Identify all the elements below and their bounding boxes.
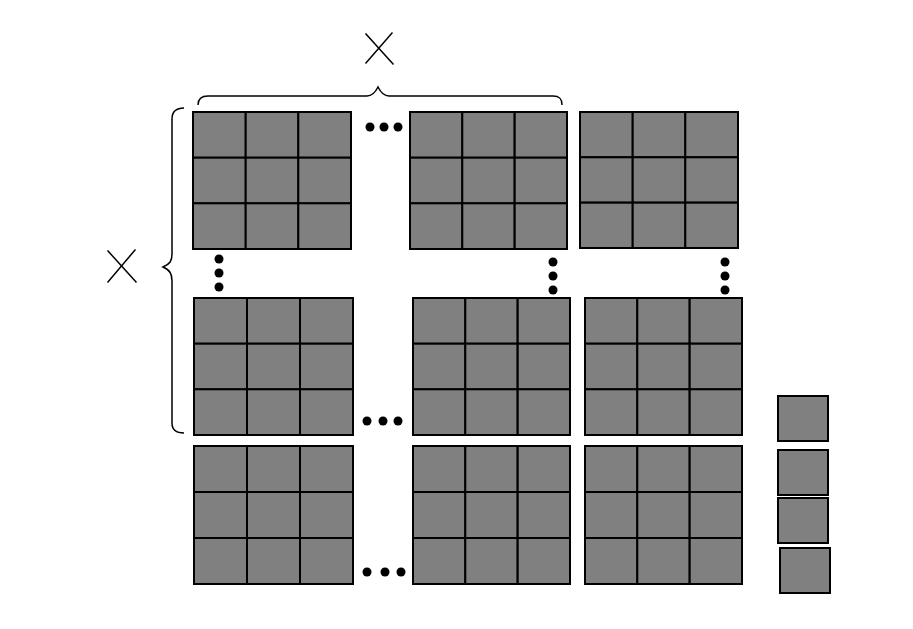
block-cell: [300, 344, 353, 390]
block-cell: [247, 298, 300, 344]
block-cell: [300, 446, 353, 492]
block-cell: [637, 492, 689, 538]
block-cell: [298, 112, 351, 158]
h-ellipsis-group: [366, 123, 403, 132]
times-stroke: [366, 34, 393, 64]
block-cell: [247, 538, 300, 584]
unit-square: [780, 548, 830, 593]
block-cell: [633, 112, 686, 157]
block-cell: [194, 538, 247, 584]
block-cell: [685, 112, 738, 157]
v-ellipsis-group: [215, 255, 224, 292]
ellipsis-dot: [215, 255, 224, 264]
block-cell: [410, 112, 462, 158]
block-cell: [637, 538, 689, 584]
block-cell: [585, 389, 637, 435]
block-cell: [194, 492, 247, 538]
block-cell: [246, 203, 299, 249]
ellipsis-dot: [381, 568, 390, 577]
block-cell: [247, 389, 300, 435]
block-cell: [247, 344, 300, 390]
block-cell: [300, 538, 353, 584]
block-cell: [580, 112, 633, 157]
ellipsis-dot: [215, 283, 224, 292]
block-cell: [194, 344, 247, 390]
block-cell: [585, 298, 637, 344]
block-cell: [410, 203, 462, 249]
block-cell: [465, 492, 517, 538]
block-cell: [193, 203, 246, 249]
block-cell: [413, 446, 465, 492]
matrix-block: [194, 298, 353, 435]
matrix-block: [193, 112, 351, 249]
block-cell: [518, 492, 570, 538]
block-cell: [465, 389, 517, 435]
block-cell: [637, 389, 689, 435]
matrix-block: [413, 446, 570, 584]
block-cell: [465, 538, 517, 584]
block-cell: [410, 158, 462, 204]
unit-square: [778, 396, 828, 441]
block-cell: [413, 538, 465, 584]
block-cell: [690, 538, 742, 584]
height-brace: [163, 108, 184, 433]
block-cell: [413, 389, 465, 435]
block-cell: [637, 446, 689, 492]
block-cell: [685, 157, 738, 202]
block-cell: [194, 389, 247, 435]
ellipsis-dot: [721, 272, 730, 281]
block-cell: [515, 203, 567, 249]
block-cell: [518, 344, 570, 390]
block-cell: [298, 158, 351, 204]
ellipsis-dot: [363, 417, 372, 426]
ellipsis-dot: [215, 269, 224, 278]
block-cell: [633, 157, 686, 202]
block-cell: [465, 298, 517, 344]
block-cell: [246, 112, 299, 158]
block-cell: [193, 158, 246, 204]
block-cell: [246, 158, 299, 204]
v-ellipsis-group: [549, 258, 558, 295]
times-symbol-left: [108, 250, 136, 282]
diagram-svg: [0, 0, 913, 629]
times-symbol-top: [366, 33, 393, 64]
block-cell: [300, 389, 353, 435]
block-cell: [633, 203, 686, 248]
h-ellipsis-group: [363, 568, 406, 577]
ellipsis-dot: [379, 417, 388, 426]
block-cell: [462, 112, 514, 158]
block-cell: [690, 389, 742, 435]
block-cell: [413, 298, 465, 344]
block-cell: [637, 298, 689, 344]
block-cell: [247, 446, 300, 492]
block-cell: [515, 112, 567, 158]
block-cell: [518, 538, 570, 584]
block-cell: [462, 158, 514, 204]
block-cell: [194, 446, 247, 492]
ellipsis-dot: [397, 568, 406, 577]
block-cell: [690, 298, 742, 344]
block-cell: [637, 344, 689, 390]
block-cell: [515, 158, 567, 204]
block-cell: [585, 446, 637, 492]
matrix-block: [410, 112, 567, 249]
unit-square: [778, 498, 828, 543]
block-cell: [518, 389, 570, 435]
ellipsis-dot: [549, 286, 558, 295]
block-cell: [585, 492, 637, 538]
block-cell: [300, 298, 353, 344]
ellipsis-dot: [721, 286, 730, 295]
ellipsis-dot: [721, 258, 730, 267]
block-cell: [465, 446, 517, 492]
block-cell: [413, 344, 465, 390]
block-cell: [465, 344, 517, 390]
matrix-block: [585, 298, 742, 435]
h-ellipsis-group: [363, 417, 403, 426]
v-ellipsis-group: [721, 258, 730, 295]
diagram-canvas: [0, 0, 913, 629]
block-cell: [462, 203, 514, 249]
block-cell: [518, 298, 570, 344]
ellipsis-dot: [394, 123, 403, 132]
width-brace: [198, 87, 562, 105]
ellipsis-dot: [363, 568, 372, 577]
block-cell: [585, 538, 637, 584]
block-cell: [585, 344, 637, 390]
ellipsis-dot: [549, 258, 558, 267]
matrix-block: [580, 112, 738, 248]
block-cell: [685, 203, 738, 248]
matrix-block: [413, 298, 570, 435]
matrix-block: [194, 446, 353, 584]
block-cell: [413, 492, 465, 538]
ellipsis-dot: [366, 123, 375, 132]
block-cell: [690, 344, 742, 390]
block-cell: [518, 446, 570, 492]
ellipsis-dot: [549, 272, 558, 281]
block-cell: [300, 492, 353, 538]
block-cell: [298, 203, 351, 249]
unit-square: [778, 450, 828, 495]
ellipsis-dot: [380, 123, 389, 132]
matrix-block: [585, 446, 742, 584]
block-cell: [247, 492, 300, 538]
block-cell: [690, 492, 742, 538]
block-cell: [690, 446, 742, 492]
block-cell: [580, 203, 633, 248]
block-cell: [193, 112, 246, 158]
block-cell: [580, 157, 633, 202]
ellipsis-dot: [394, 417, 403, 426]
block-cell: [194, 298, 247, 344]
